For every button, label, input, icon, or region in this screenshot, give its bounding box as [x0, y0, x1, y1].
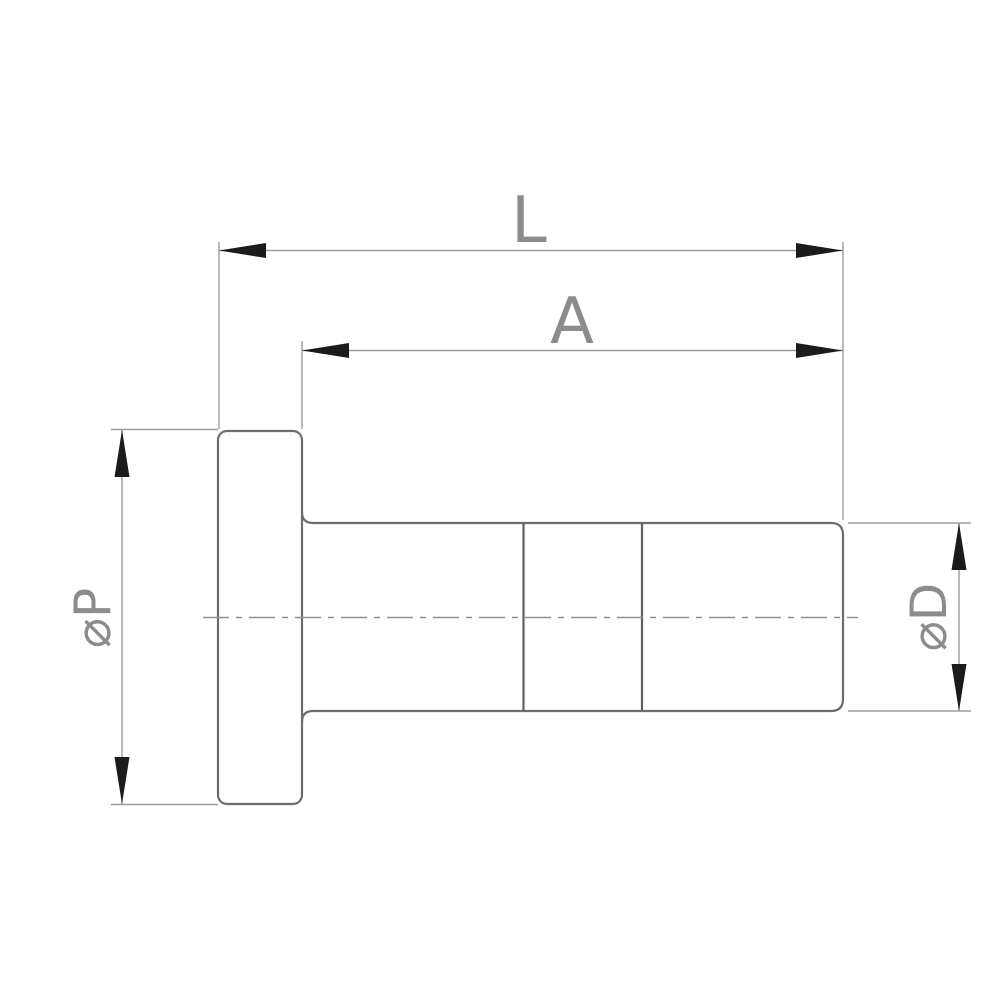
arrowhead-P-top	[115, 430, 130, 477]
dimension-label-D: ⌀D	[900, 583, 958, 652]
dimension-P: ⌀P	[64, 430, 218, 805]
arrowhead-A-right	[796, 343, 843, 358]
drawing-canvas: L A ⌀P ⌀D	[0, 0, 1000, 1000]
arrowhead-D-bottom	[952, 664, 967, 711]
dimension-label-L: L	[511, 184, 547, 258]
arrowhead-A-left	[302, 343, 349, 358]
arrowhead-L-right	[796, 243, 843, 258]
technical-drawing: L A ⌀P ⌀D	[0, 0, 1000, 1000]
dimension-D: ⌀D	[848, 523, 971, 711]
arrowhead-L-left	[219, 243, 266, 258]
dimension-label-A: A	[550, 285, 594, 359]
dimension-A: A	[302, 285, 843, 429]
dimension-label-P: ⌀P	[64, 588, 122, 648]
arrowhead-P-bottom	[115, 757, 130, 804]
arrowhead-D-top	[952, 523, 967, 570]
